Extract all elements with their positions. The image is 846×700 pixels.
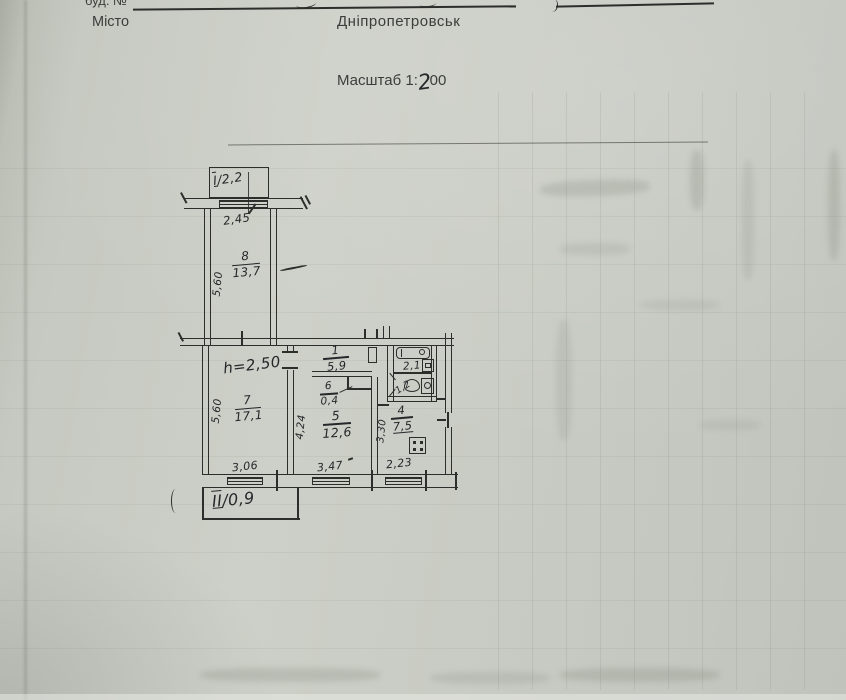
room8-number: 8 [241,250,250,263]
window [447,412,449,428]
stove-burner [413,448,416,451]
stray-pen-stroke [280,264,307,271]
wall [437,398,445,400]
hall-label: 1 5,9 [320,343,352,373]
room8-label: 8 13,7 [229,249,263,280]
exterior-wall [180,338,454,346]
room7-area: 17,1 [234,409,263,424]
room7-number: 7 [243,394,252,407]
brace-mark [171,489,180,513]
balcony-bottom-outline [202,487,204,520]
balcony-bottom-area: 0,9 [227,488,255,509]
scanned-document-page: буд. № Місто Дніпропетровськ Масштаб 1:2… [0,0,846,700]
wall [287,370,294,475]
exterior-wall [202,346,209,475]
dimension-room5-width: 3,47 [316,459,343,475]
wall-break-mark [178,332,184,342]
stove-burner [420,448,423,451]
tick-mark [276,470,278,491]
window [385,477,422,485]
dimension-top-window: 2,45 [222,210,251,228]
balcony-bottom-label: II/0,9 [211,488,255,511]
sink-basin-icon [425,363,431,368]
wall [393,372,431,374]
wall-end-cap [455,472,457,490]
window [227,477,263,485]
closet-number: 6 [325,381,333,392]
tick-mark [376,329,378,339]
wall-break-mark [305,195,311,205]
stove-icon [409,437,426,454]
window [219,200,268,208]
tick-mark [364,329,366,339]
kitchen-label: 4 7,5 [389,403,415,434]
dimension-room5-depth: 4,24 [294,414,309,440]
exterior-wall [445,427,452,475]
stove-burner [413,441,416,444]
dimension-room7-width: 3,06 [231,459,258,475]
wall-stub [383,326,390,339]
dimension-kitchen-depth: 3,30 [375,419,388,444]
bathtub-faucet-line [401,349,402,357]
door-tick [282,351,298,353]
balcony-top-area: 2,2 [221,169,244,187]
closet-label: 6 0,4 [317,380,341,407]
tick-mark [241,331,243,345]
leader-line [339,386,352,393]
pen-dot [348,457,353,460]
dimension-corridor-depth: 5,60 [211,271,226,297]
room7-label: 7 17,1 [232,393,264,424]
entrance-door-leaf [368,347,377,363]
toilet-tank-circle [424,382,431,389]
dimension-room7-depth: 5,60 [210,398,225,424]
closet-area: 0,4 [320,395,339,407]
door-tick [377,404,389,406]
wall [204,209,211,345]
window [312,477,350,485]
ceiling-height-note: h=2,50 [222,353,282,378]
room5-label: 5 12,6 [320,408,353,440]
room8-area: 13,7 [232,265,261,280]
bathtub-drain-icon [419,349,425,355]
tick-mark [425,470,427,491]
stove-burner [420,441,423,444]
dimension-kitchen-width: 2,23 [385,456,412,472]
floor-plan: I/2,2 2,45 8 13,7 5,60 [0,0,846,700]
wall [270,209,277,345]
kitchen-area: 7,5 [392,419,413,434]
hall-area: 5,9 [326,359,346,373]
exterior-wall [445,333,452,413]
room5-area: 12,6 [322,425,352,440]
bathroom-area-label: 2,1 [403,359,422,373]
hall-number: 1 [331,344,340,357]
closet-wall [347,388,372,390]
wall [387,396,437,402]
balcony-bottom-outline [202,518,300,520]
door-tick [282,367,298,369]
balcony-bottom-outline [297,487,299,520]
tick-mark [437,419,446,421]
room5-number: 5 [331,409,340,423]
kitchen-number: 4 [397,404,406,417]
